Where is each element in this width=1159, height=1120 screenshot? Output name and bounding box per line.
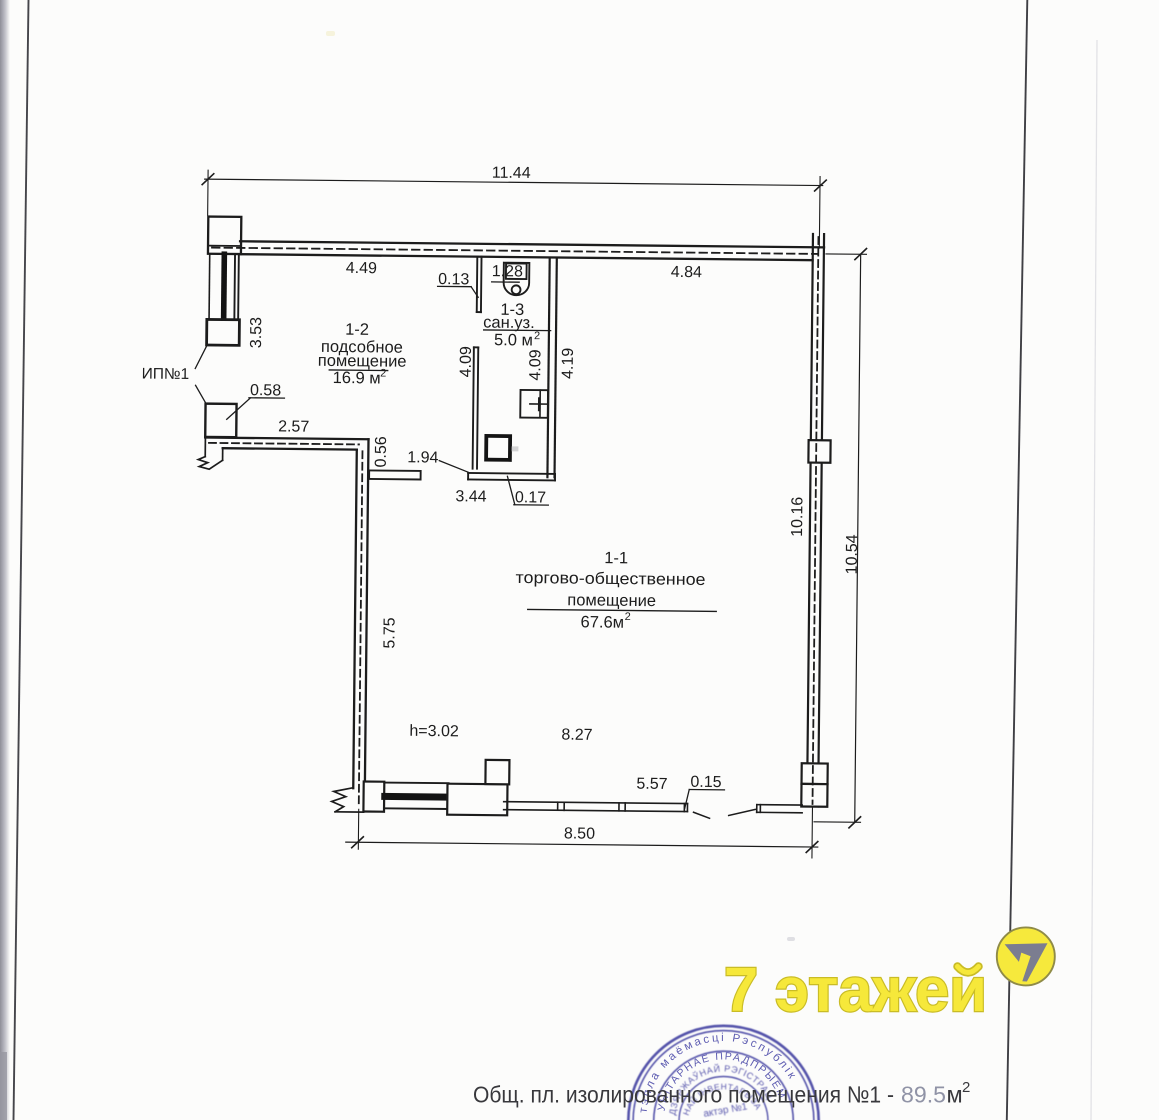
svg-text:5.57: 5.57: [636, 776, 667, 793]
svg-text:0.56: 0.56: [373, 436, 390, 467]
svg-text:4.09: 4.09: [458, 346, 475, 377]
svg-text:2.57: 2.57: [278, 418, 309, 435]
svg-text:торгово-общественное: торгово-общественное: [515, 569, 705, 589]
svg-text:3.53: 3.53: [248, 317, 265, 348]
svg-text:ИП№1: ИП№1: [142, 365, 190, 382]
svg-text:5.0 м: 5.0 м: [494, 331, 533, 349]
svg-text:4.19: 4.19: [560, 348, 577, 379]
svg-text:h=3.02: h=3.02: [409, 723, 459, 741]
svg-text:0.15: 0.15: [690, 774, 721, 791]
svg-text:4.49: 4.49: [346, 260, 377, 277]
svg-text:помещение: помещение: [567, 591, 656, 610]
svg-text:4.84: 4.84: [671, 264, 702, 281]
svg-text:1-2: 1-2: [345, 321, 369, 339]
svg-text:11.44: 11.44: [492, 165, 531, 182]
svg-text:5.75: 5.75: [381, 617, 398, 648]
svg-text:4.09: 4.09: [527, 349, 544, 380]
svg-text:8.50: 8.50: [564, 825, 595, 842]
svg-text:м: м: [947, 1082, 963, 1108]
svg-text:помещение: помещение: [318, 352, 407, 371]
svg-text:Общ. пл. изолированного помеще: Общ. пл. изолированного помещения №1 -: [473, 1082, 894, 1108]
svg-text:0.17: 0.17: [515, 489, 546, 506]
svg-text:0.58: 0.58: [250, 382, 281, 399]
svg-text:16.9 м: 16.9 м: [333, 369, 381, 388]
svg-text:7 этажеи: 7 этажеи: [724, 956, 987, 1025]
svg-text:сан.уз.: сан.уз.: [483, 314, 535, 333]
svg-text:2: 2: [380, 367, 386, 379]
svg-text:89.5: 89.5: [901, 1082, 946, 1108]
svg-text:2: 2: [962, 1079, 970, 1096]
svg-text:1-1: 1-1: [604, 549, 628, 567]
svg-text:1.28: 1.28: [492, 263, 523, 280]
svg-text:2: 2: [625, 611, 631, 623]
svg-text:10.16: 10.16: [789, 497, 806, 537]
svg-text:3.44: 3.44: [455, 488, 486, 505]
svg-text:67.6м: 67.6м: [581, 613, 625, 631]
svg-text:8.27: 8.27: [561, 727, 592, 744]
svg-text:1.94: 1.94: [407, 449, 438, 466]
svg-text:2: 2: [534, 330, 540, 342]
svg-text:10.54: 10.54: [844, 534, 861, 574]
